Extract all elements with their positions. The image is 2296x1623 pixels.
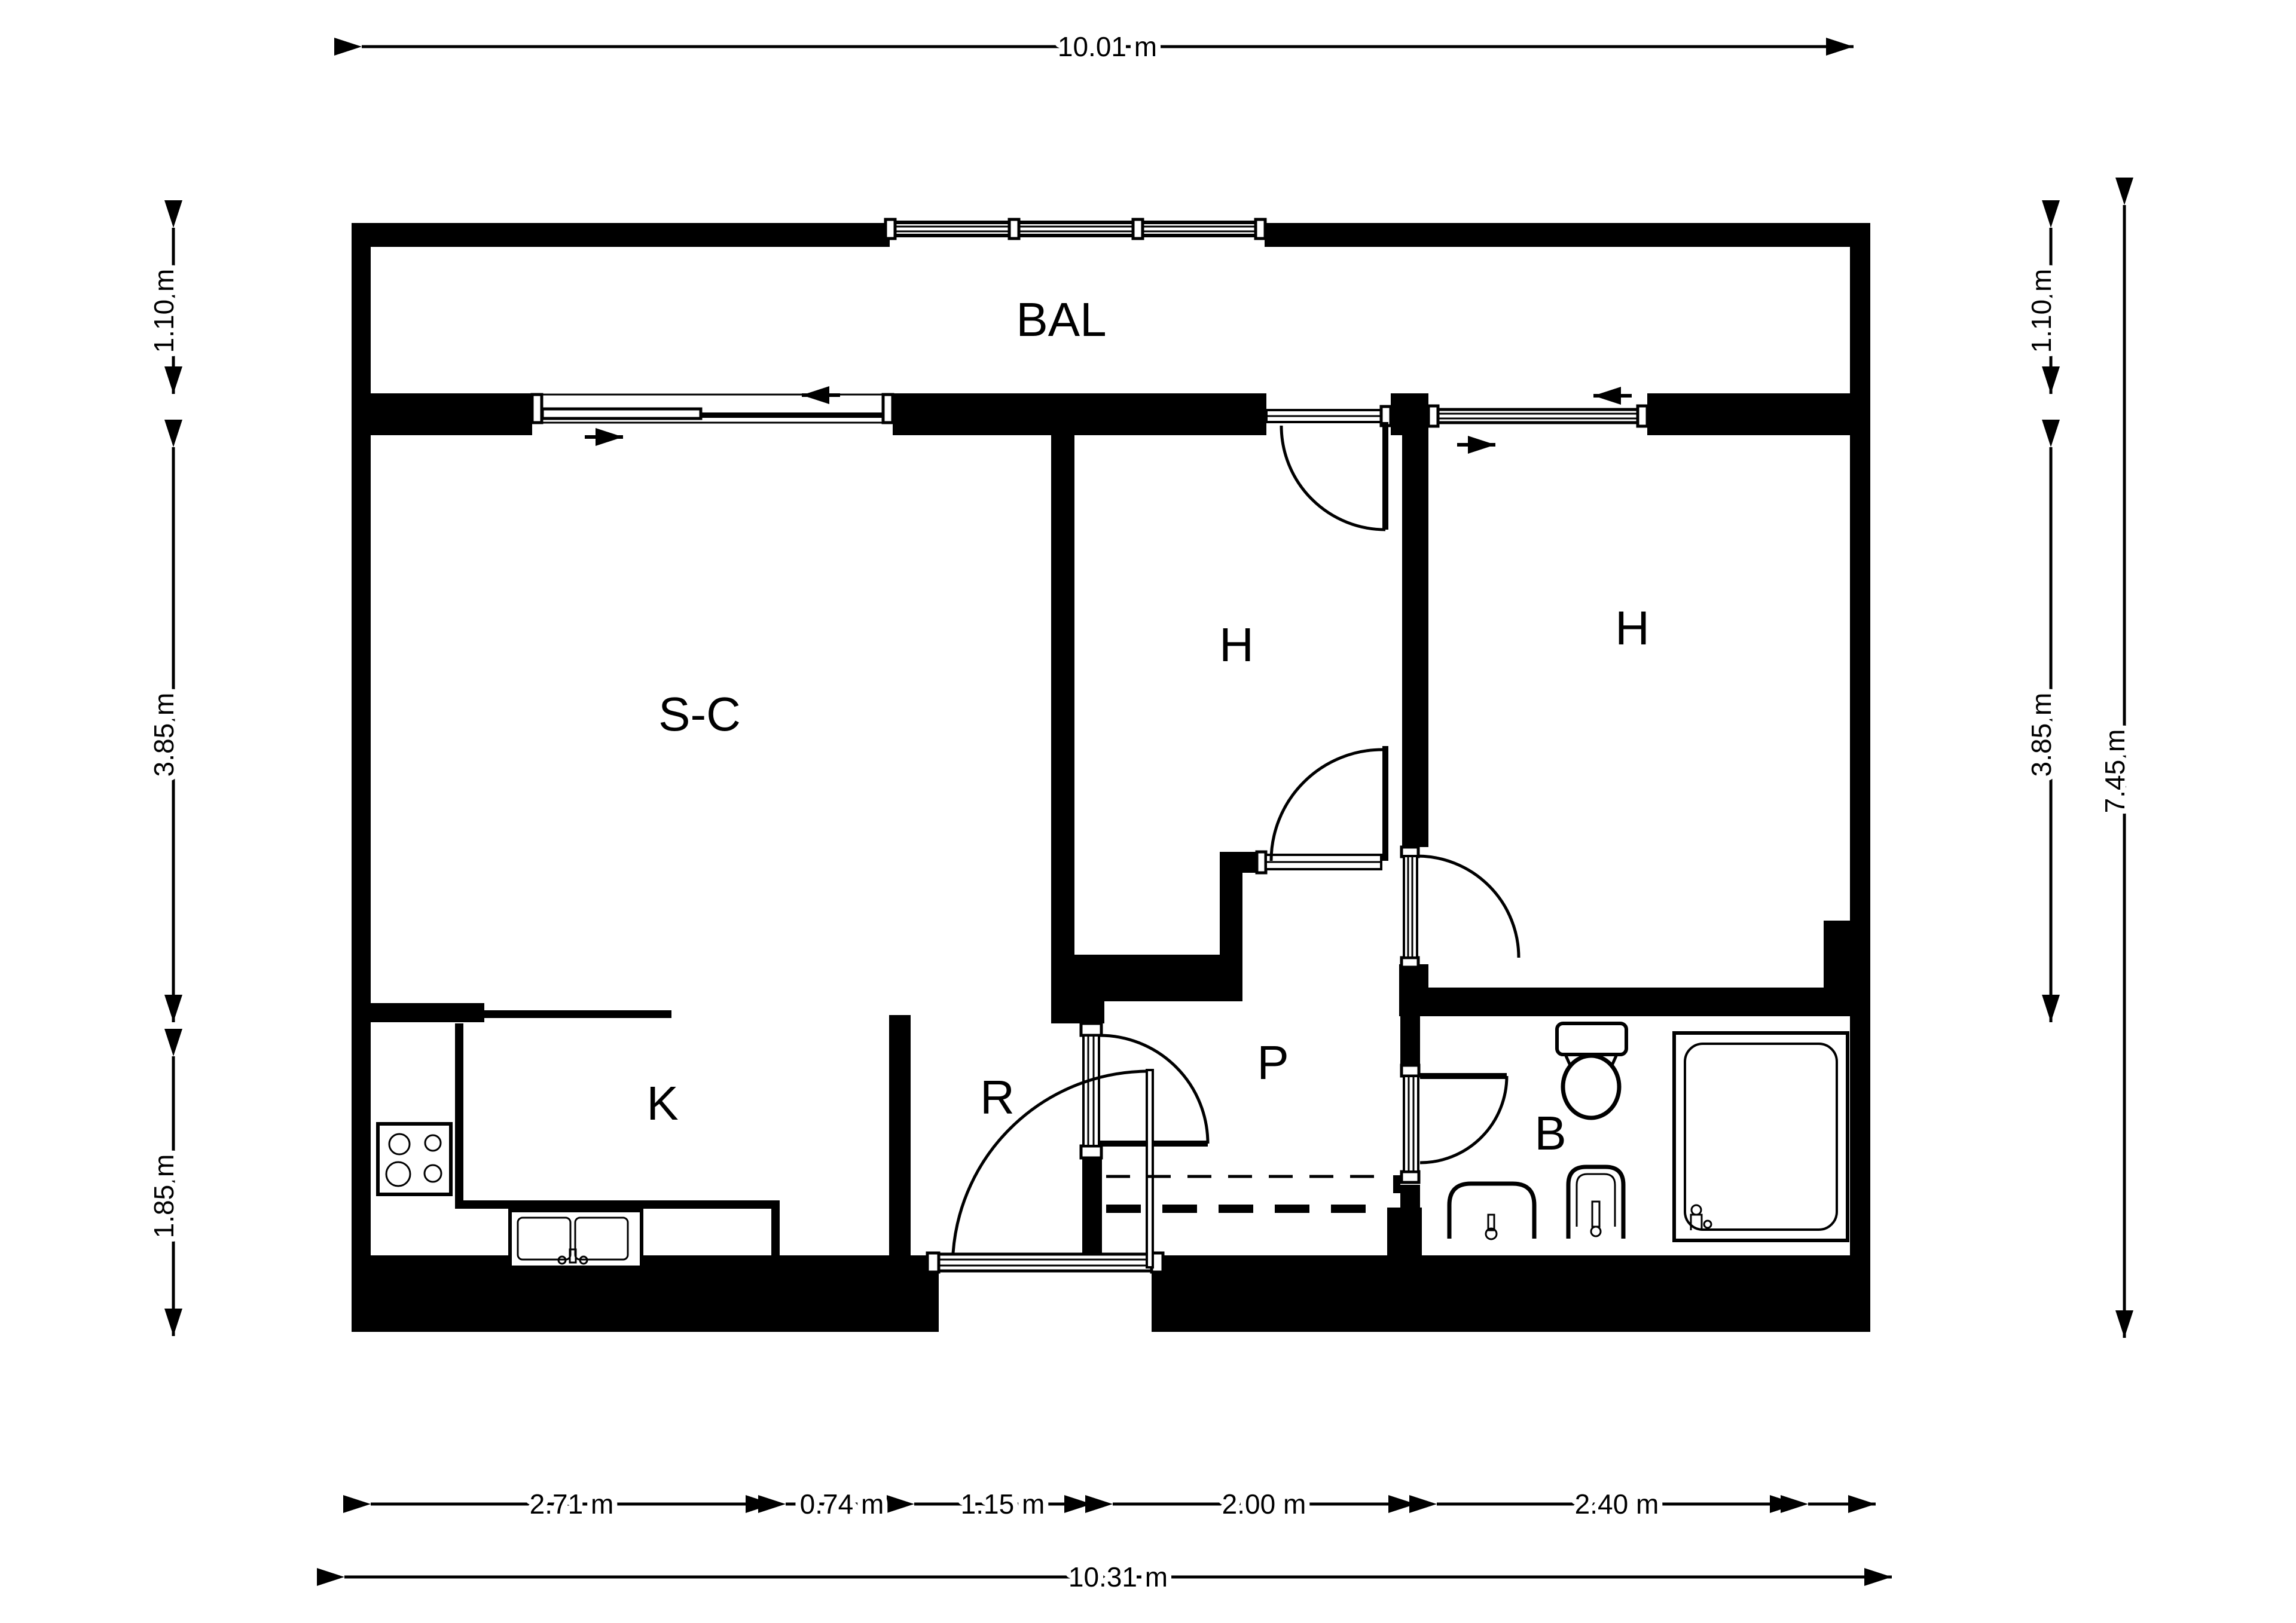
balc-seg-4: [1647, 393, 1850, 435]
dim-seg-4: 2.40 m: [1575, 1488, 1659, 1520]
dim-right-total: 7.45 m: [2099, 729, 2130, 814]
label-hall-p: P: [1257, 1036, 1289, 1089]
wall-sc-k-thin: [484, 1010, 671, 1018]
wall-h-nook-stub: [1220, 852, 1257, 873]
bedroom-right-window: [1428, 396, 1647, 445]
wall-bottom-left: [352, 1255, 939, 1332]
dim-right-1: 3.85 m: [2026, 693, 2057, 777]
dimension-right: 1.10 m 3.85 m 7.45 m: [2026, 205, 2130, 1338]
dim-right-0: 1.10 m: [2026, 269, 2057, 353]
label-balcony: BAL: [1016, 293, 1106, 346]
wall-top-right: [1265, 223, 1870, 247]
door-panel: [1382, 746, 1388, 861]
label-bathroom: B: [1534, 1107, 1566, 1160]
stove: [378, 1124, 451, 1194]
dim-top-total: 10.01 m: [1058, 31, 1157, 62]
bedroom-mid-balcony-door: [1266, 406, 1391, 530]
door-panel: [1147, 1070, 1153, 1267]
dim-left-1: 3.85 m: [148, 693, 179, 777]
toilet: [1557, 1023, 1626, 1118]
entry-door: [927, 1070, 1163, 1272]
wall-sc-h: [1051, 393, 1074, 977]
wall-pb-1: [1400, 1016, 1420, 1065]
wall-pb-pilaster: [1393, 1175, 1400, 1193]
wall-right: [1850, 223, 1870, 1332]
dimension-bottom-total: 10.31 m: [344, 1561, 1892, 1593]
door-arc: [1281, 426, 1385, 530]
window-mullion: [886, 219, 895, 239]
label-bedroom-right: H: [1615, 601, 1650, 655]
balc-seg-1: [352, 393, 532, 435]
label-living: S-C: [658, 687, 741, 741]
door-arc: [1420, 1076, 1507, 1163]
wall-b-top: [1402, 988, 1870, 1016]
bathroom-sink: [1449, 1184, 1534, 1239]
dimension-left: 1.10 m 3.85 m 1.85 m: [148, 228, 179, 1336]
p-to-bathroom-door: [1402, 1065, 1507, 1182]
bedroom-mid-door: [1257, 746, 1388, 873]
balc-seg-2: [893, 393, 1266, 435]
wall-top-left: [352, 223, 890, 247]
wall-bottom-right: [1152, 1255, 1870, 1332]
label-kitchen: K: [646, 1077, 678, 1130]
top-window: [886, 219, 1265, 239]
wall-pb-stub: [1387, 1208, 1422, 1255]
window-mullion: [1133, 219, 1143, 239]
dim-seg-1: 0.74 m: [800, 1488, 884, 1520]
kitchen-sink: [510, 1211, 642, 1267]
wall-rp-lower: [1082, 1158, 1102, 1255]
label-bedroom-mid: H: [1219, 618, 1254, 671]
dim-left-0: 1.10 m: [148, 269, 179, 353]
door-panel: [1382, 422, 1388, 530]
bedroom-right-door: [1402, 847, 1519, 967]
bidet: [1568, 1167, 1623, 1239]
wall-k-r: [889, 1015, 911, 1255]
wall-left: [352, 223, 371, 1332]
door-arc: [1271, 750, 1382, 861]
hall-r-to-p-door: [1081, 1023, 1208, 1158]
dimension-top: 10.01 m: [362, 31, 1854, 62]
dim-seg-2: 1.15 m: [961, 1488, 1045, 1520]
door-panel: [1420, 1073, 1507, 1079]
dim-bottom-total: 10.31 m: [1068, 1561, 1168, 1593]
dim-seg-0: 2.71 m: [530, 1488, 614, 1520]
interior-walls: [370, 393, 1870, 1255]
wall-sc-k-thick: [370, 1003, 484, 1022]
wall-mid-block: [1052, 986, 1104, 1023]
wall-corner-block: [1824, 921, 1850, 988]
wall-h-south-2: [1101, 977, 1242, 1001]
dimension-bottom-segments: 2.71 m 0.74 m 1.15 m 2.00 m 2.40 m: [371, 1488, 1876, 1520]
floor-plan-canvas: BAL S-C H H K R P B 10.01 m 1.10 m 3.85 …: [0, 0, 2296, 1623]
wall-h-south-1: [1074, 955, 1242, 977]
window-mullion: [1009, 219, 1019, 239]
window-mullion: [1256, 219, 1265, 239]
wall-hh-top: [1402, 393, 1428, 847]
dim-left-2: 1.85 m: [148, 1154, 179, 1239]
label-hall-r: R: [980, 1071, 1015, 1124]
exterior-walls: [352, 223, 1870, 1332]
bathtub: [1674, 1033, 1848, 1240]
balcony-sliding-door: [532, 395, 893, 437]
dim-seg-3: 2.00 m: [1222, 1488, 1306, 1520]
